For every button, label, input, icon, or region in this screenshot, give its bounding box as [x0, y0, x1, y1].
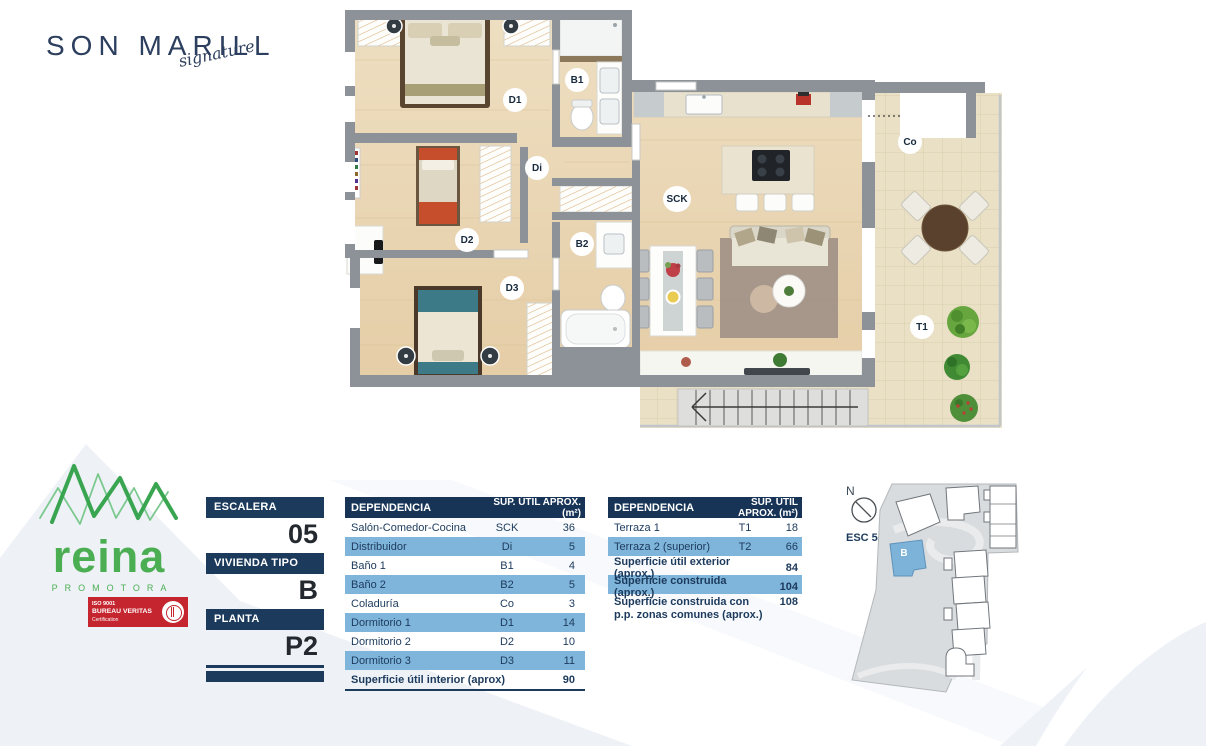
- table-row: Terraza 2 (superior) T2 66: [608, 537, 802, 556]
- esc-label: ESC 5: [846, 532, 878, 544]
- escalera-value: 05: [206, 520, 324, 548]
- highlighted-building-label: B: [894, 548, 914, 559]
- table-row: Dormitorio 2 D2 10: [345, 632, 585, 651]
- vivienda-tipo-label: VIVIENDA TIPO: [206, 553, 324, 574]
- room-label-t1: T1: [910, 315, 934, 339]
- cert-sub: Certification: [92, 617, 162, 623]
- crown-icon: [30, 458, 188, 528]
- planta-value: P2: [206, 632, 324, 660]
- room-label-sck: SCK: [663, 186, 691, 212]
- cert-seal-icon: [162, 601, 184, 623]
- unit-divider-line: [206, 665, 324, 668]
- col-sup-util: SUP. ÚTIL APROX. (m²): [479, 497, 585, 519]
- table-row: Coladuría Co 3: [345, 594, 585, 613]
- north-indicator: N: [846, 484, 855, 498]
- table-row: Dormitorio 3 D3 11: [345, 651, 585, 670]
- room-label-d2: D2: [455, 228, 479, 252]
- sitemap-drawing: [838, 482, 1040, 734]
- unit-divider-bar: [206, 671, 324, 682]
- col-dependencia: DEPENDENCIA: [608, 502, 724, 514]
- room-label-co: Co: [898, 130, 922, 154]
- table-row: Baño 2 B2 5: [345, 575, 585, 594]
- escalera-label: ESCALERA: [206, 497, 324, 518]
- room-label-b2: B2: [570, 232, 594, 256]
- interior-table: DEPENDENCIA SUP. ÚTIL APROX. (m²) Salón-…: [345, 497, 585, 691]
- col-dependencia: DEPENDENCIA: [345, 502, 479, 514]
- bureau-veritas-badge: ISO 9001 BUREAU VERITAS Certification: [88, 597, 188, 627]
- exterior-summary-row: Superficie construida con p.p. zonas com…: [608, 594, 802, 630]
- floorplan: D1 B1 Di D2 B2 D3 SCK Co T1: [334, 0, 1006, 440]
- table-row: Salón-Comedor-Cocina SCK 36: [345, 518, 585, 537]
- sitemap: N ESC 5 B: [838, 482, 1040, 734]
- col-sup-util: SUP. ÚTIL APROX. (m²): [724, 497, 802, 519]
- exterior-table: DEPENDENCIA SUP. ÚTIL APROX. (m²) Terraz…: [608, 497, 802, 630]
- planta-label: PLANTA: [206, 609, 324, 630]
- table-row: Dormitorio 1 D1 14: [345, 613, 585, 632]
- developer-logo: reina PROMOTORA ISO 9001 BUREAU VERITAS …: [30, 458, 188, 593]
- interior-total-row: Superficie útil interior (aprox) 90: [345, 670, 585, 691]
- room-label-d3: D3: [500, 276, 524, 300]
- brochure-page: { "brand": { "title": "SON MARILL", "sub…: [0, 0, 1206, 746]
- exterior-summary-row: Superficie útil exterior (aprox.) 84: [608, 556, 802, 575]
- room-label-d1: D1: [503, 88, 527, 112]
- exterior-table-header: DEPENDENCIA SUP. ÚTIL APROX. (m²): [608, 497, 802, 518]
- floorplan-drawing: [334, 0, 1006, 440]
- developer-tagline: PROMOTORA: [30, 583, 188, 593]
- cert-org: BUREAU VERITAS: [92, 608, 162, 616]
- table-row: Baño 1 B1 4: [345, 556, 585, 575]
- interior-table-header: DEPENDENCIA SUP. ÚTIL APROX. (m²): [345, 497, 585, 518]
- cert-iso: ISO 9001: [92, 601, 162, 608]
- room-label-b1: B1: [565, 68, 589, 92]
- table-row: Distribuidor Di 5: [345, 537, 585, 556]
- table-row: Terraza 1 T1 18: [608, 518, 802, 537]
- exterior-summary-row: Superficie construida (aprox.) 104: [608, 575, 802, 594]
- unit-info: ESCALERA 05 VIVIENDA TIPO B PLANTA P2: [206, 497, 324, 682]
- developer-name: reina: [30, 535, 188, 579]
- room-label-di: Di: [525, 156, 549, 180]
- vivienda-tipo-value: B: [206, 576, 324, 604]
